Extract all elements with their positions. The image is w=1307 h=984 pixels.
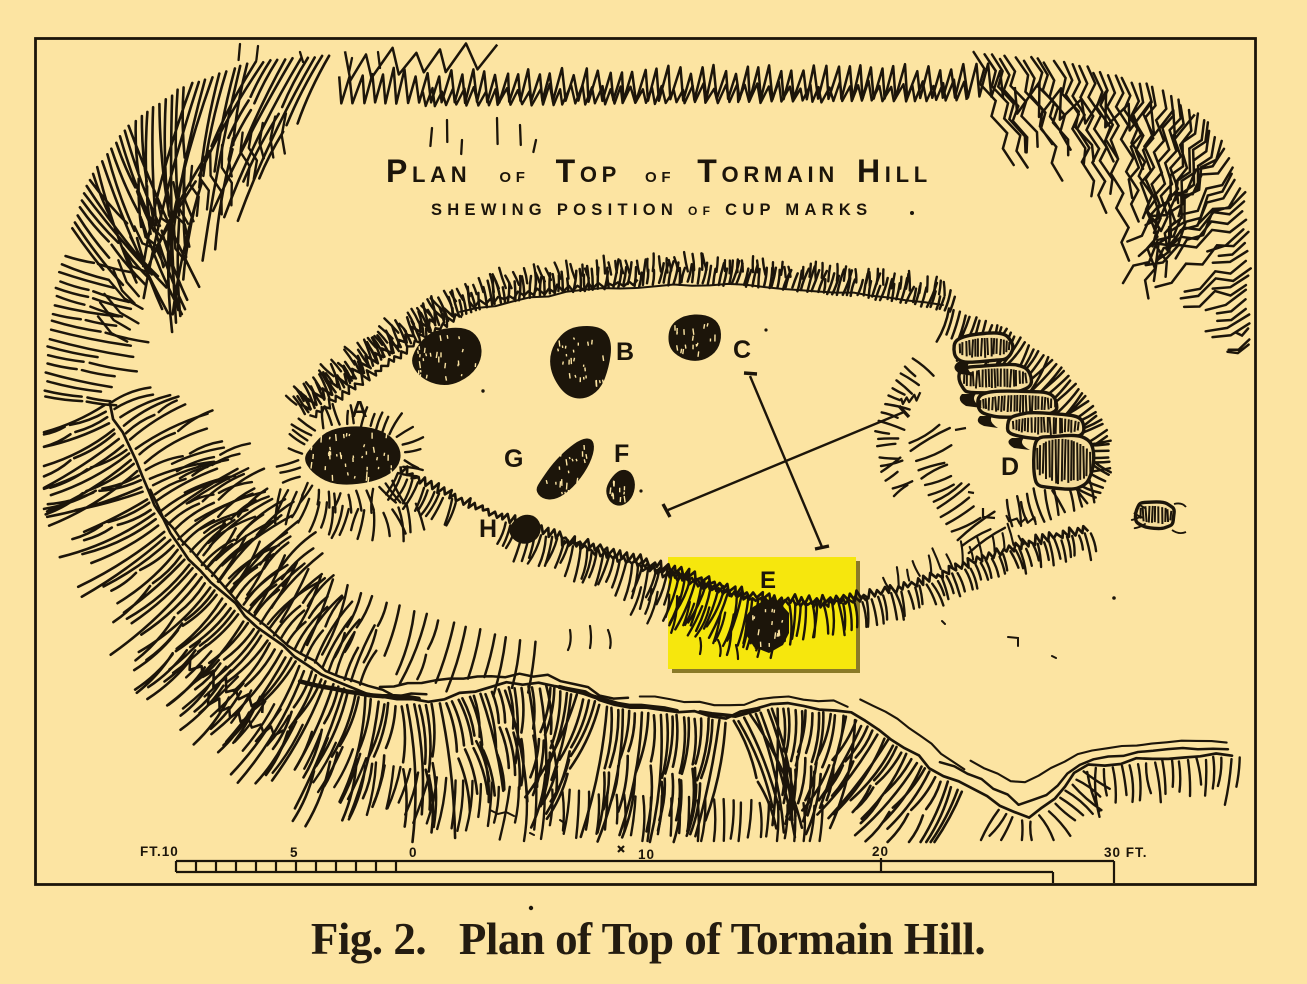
svg-text:5: 5 [290,845,299,860]
svg-text:D: D [1001,453,1019,481]
svg-text:10: 10 [638,847,655,862]
svg-text:F: F [614,440,629,468]
svg-text:C: C [733,336,751,364]
svg-text:0: 0 [409,845,418,860]
svg-text:E: E [760,567,776,594]
svg-text:A: A [351,396,368,422]
svg-text:FT.10: FT.10 [140,844,179,859]
svg-text:Fig. 2. Plan of Top of Tormai: Fig. 2. Plan of Top of Tormain Hill. [311,914,985,964]
svg-text:B: B [616,338,634,366]
svg-text:SHEWING POSITION OF CUP MARKS: SHEWING POSITION OF CUP MARKS [431,201,872,219]
svg-text:20: 20 [872,844,889,859]
svg-text:G: G [504,445,523,473]
svg-text:30 FT.: 30 FT. [1104,845,1148,860]
svg-text:H: H [479,515,497,543]
